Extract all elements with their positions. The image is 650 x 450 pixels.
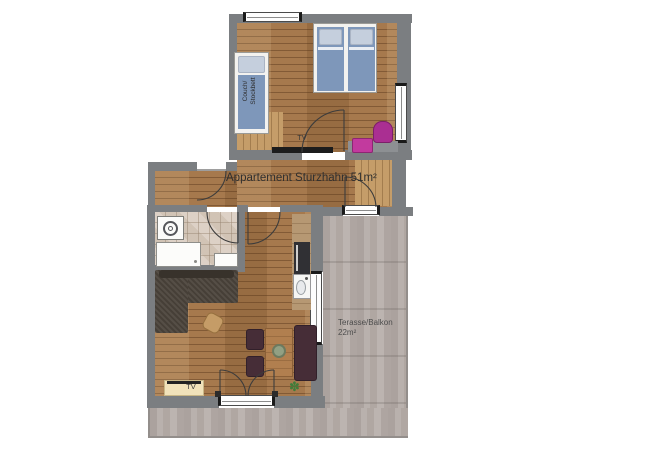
dining-bench — [294, 325, 317, 381]
pink-cushion-seat — [352, 138, 373, 153]
bedroom-tv-icon — [272, 147, 333, 153]
living-wall-bottom-right — [274, 396, 325, 408]
sink-basin — [296, 280, 306, 295]
couch-bed-label: Couch/ Stockbett — [242, 62, 260, 120]
washbasin — [214, 253, 238, 267]
mattress-right — [348, 27, 375, 91]
living-tv-label: TV — [176, 382, 206, 391]
bedroom-window-top — [243, 12, 302, 22]
floor-plan: Couch/ Stockbett TV TV ✽ — [0, 0, 650, 450]
plant-icon: ✽ — [289, 379, 300, 395]
dining-chair-top — [246, 329, 264, 350]
bedroom-window-right — [395, 83, 407, 143]
duvet-fold — [349, 47, 374, 50]
hallway-floor-left — [155, 171, 237, 207]
terrace-label: Terasse/Balkon 22m² — [338, 318, 393, 338]
bathroom-wall-right — [237, 205, 245, 272]
living-wall-right-upper — [311, 207, 323, 272]
pillow-icon — [350, 29, 373, 45]
apartment-label: Appartement Sturzhahn 51m² — [226, 172, 377, 184]
hallway-wall-bottom-a — [148, 205, 207, 212]
french-door-glass — [218, 395, 275, 406]
hallway-terrace-door-glass — [342, 205, 380, 215]
bedroom-tv-label: TV — [282, 133, 322, 142]
kitchen-sink — [293, 274, 311, 299]
living-wall-bottom-left — [147, 396, 219, 408]
terrace-label-line1: Terasse/Balkon — [338, 318, 393, 328]
pink-chair — [373, 121, 393, 143]
faucet-icon — [305, 277, 308, 280]
terrace-floor-bottom — [148, 408, 408, 438]
living-wall-left — [147, 205, 155, 408]
toilet-drain — [168, 226, 173, 231]
stove-handle — [296, 245, 298, 271]
terrace-wall-top-a — [323, 207, 343, 216]
dining-chair-bottom — [246, 356, 264, 377]
table-bowl — [272, 344, 286, 358]
hallway-wall-top-left — [148, 162, 197, 171]
terrace-label-line2: 22m² — [338, 328, 393, 338]
toilet-icon — [157, 216, 184, 240]
mattress-left — [317, 27, 344, 91]
shower-tray — [156, 242, 201, 267]
stove-icon — [294, 242, 310, 274]
corner-sofa-vertical — [155, 270, 188, 333]
terrace-wall-top-b — [379, 207, 413, 216]
double-bed — [313, 23, 377, 93]
shower-drain — [194, 260, 197, 263]
sofa-backrest — [159, 270, 234, 278]
duvet-fold — [318, 47, 343, 50]
pillow-icon — [319, 29, 342, 45]
hallway-wall-top-stub — [226, 162, 237, 171]
